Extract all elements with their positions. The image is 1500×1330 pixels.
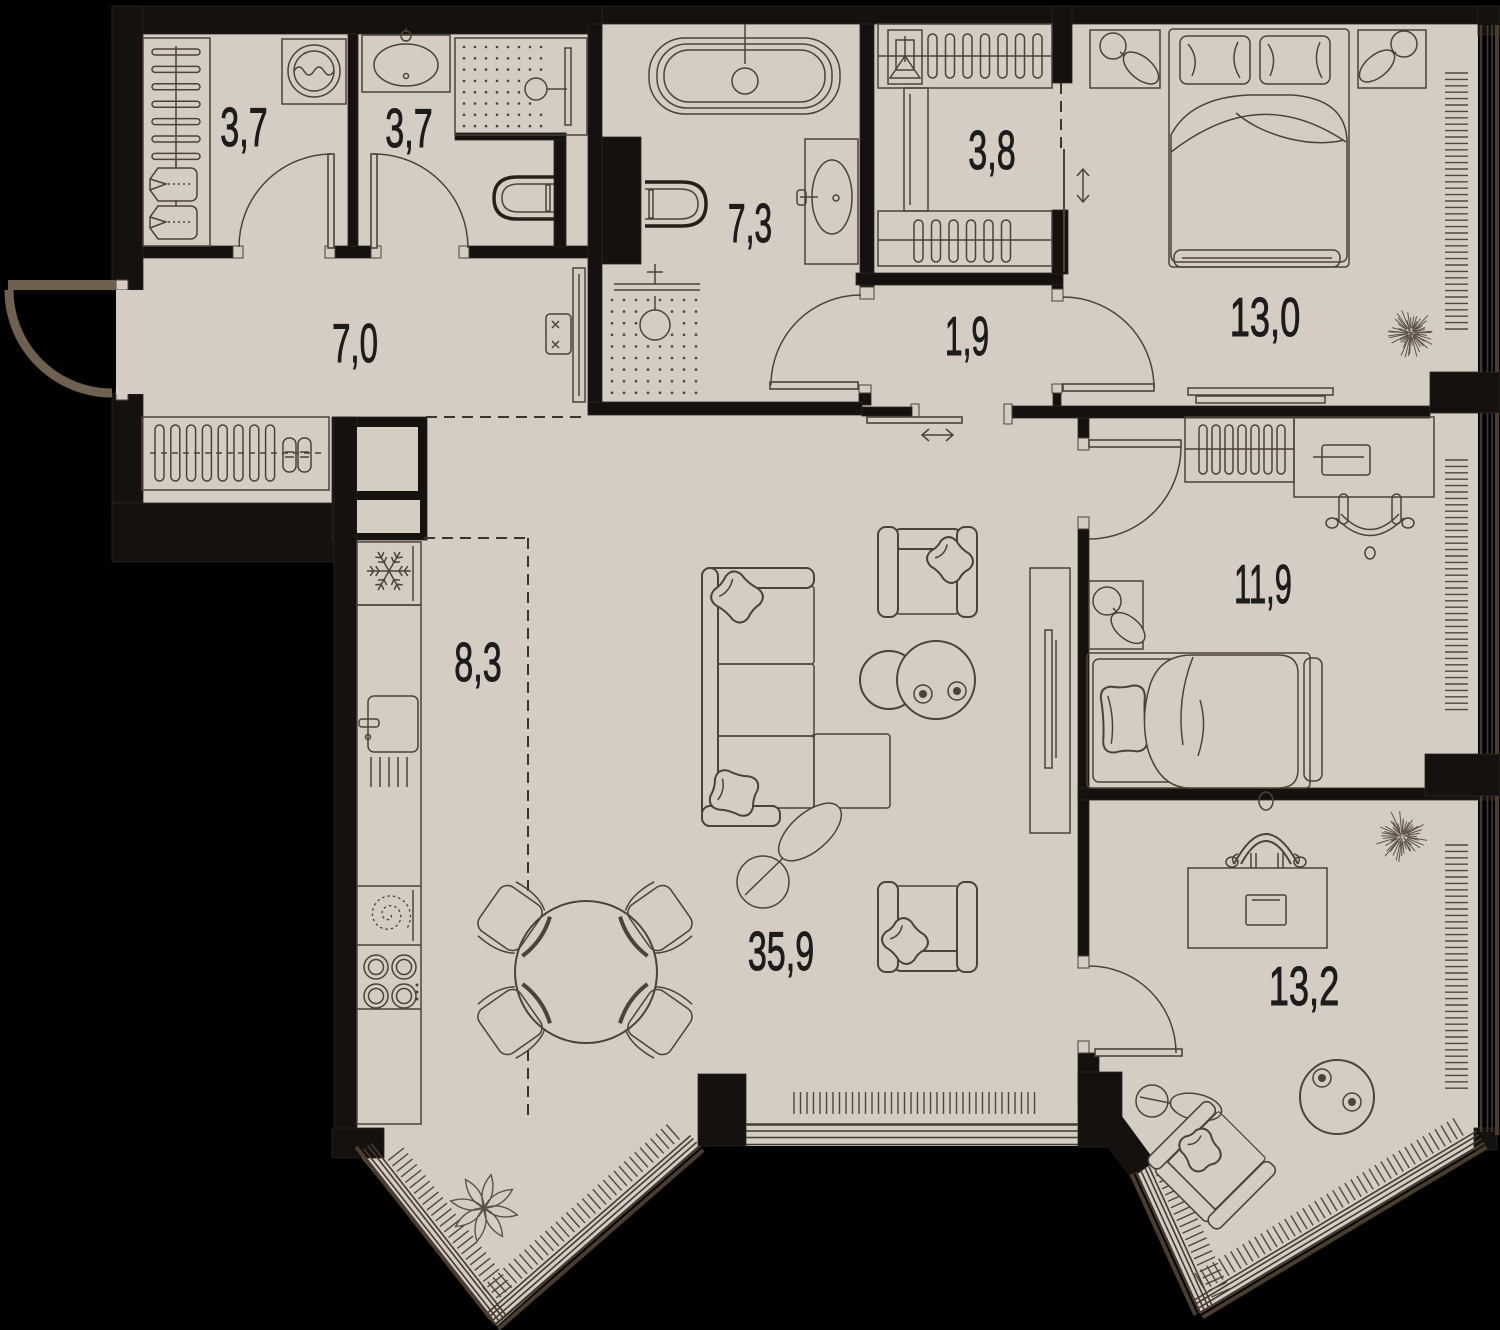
svg-text:13,0: 13,0 xyxy=(1230,286,1301,347)
svg-text:3,8: 3,8 xyxy=(968,120,1015,181)
svg-text:3,7: 3,7 xyxy=(220,97,267,158)
svg-text:3,7: 3,7 xyxy=(385,98,432,159)
svg-text:7,3: 7,3 xyxy=(728,192,772,254)
svg-text:8,3: 8,3 xyxy=(454,632,501,693)
svg-text:35,9: 35,9 xyxy=(748,921,814,982)
svg-text:11,9: 11,9 xyxy=(1234,555,1292,615)
svg-text:13,2: 13,2 xyxy=(1269,955,1340,1016)
svg-text:1,9: 1,9 xyxy=(945,305,989,367)
svg-text:7,0: 7,0 xyxy=(332,312,378,374)
